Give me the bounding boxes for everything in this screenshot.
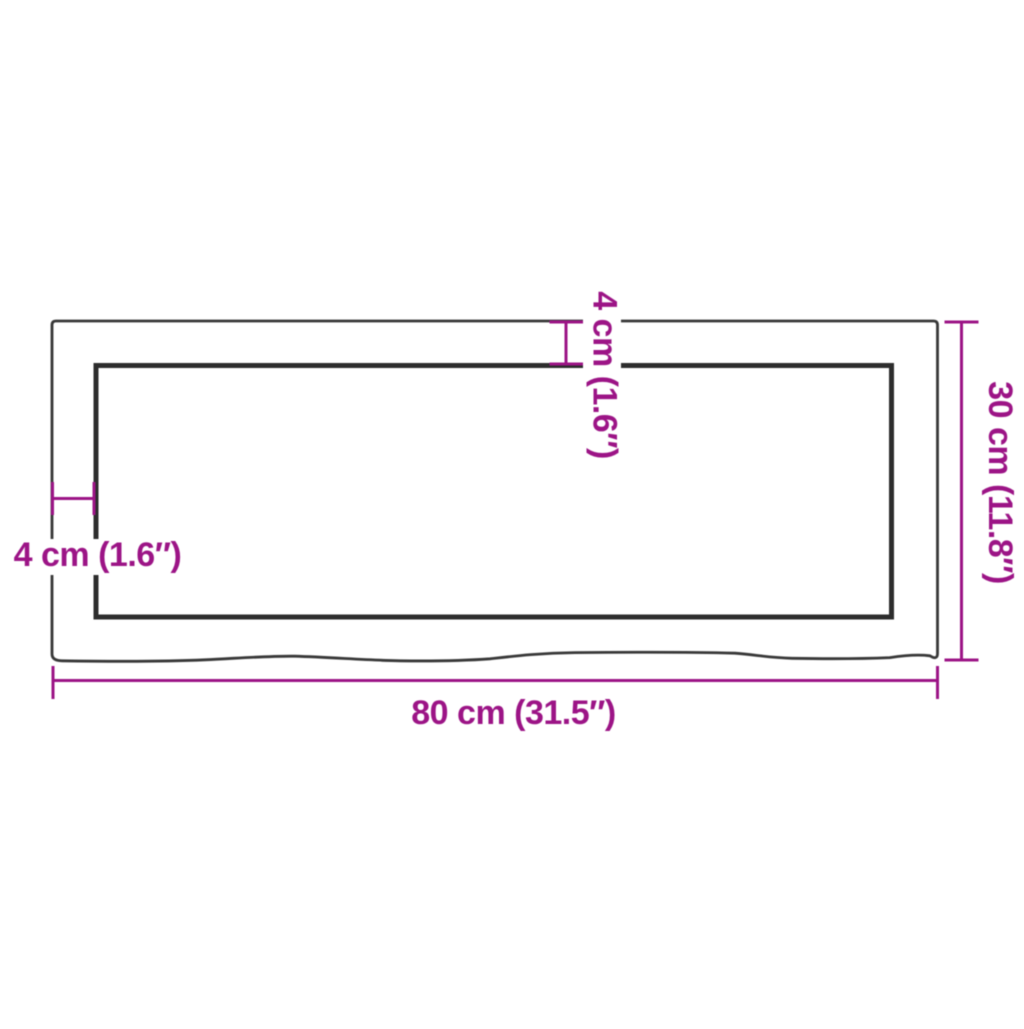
svg-text:4 cm (1.6″): 4 cm (1.6″)	[586, 291, 624, 459]
svg-text:30 cm (11.8″): 30 cm (11.8″)	[981, 381, 1019, 584]
svg-text:80 cm (31.5″): 80 cm (31.5″)	[411, 694, 615, 732]
svg-text:4 cm (1.6″): 4 cm (1.6″)	[14, 536, 182, 574]
